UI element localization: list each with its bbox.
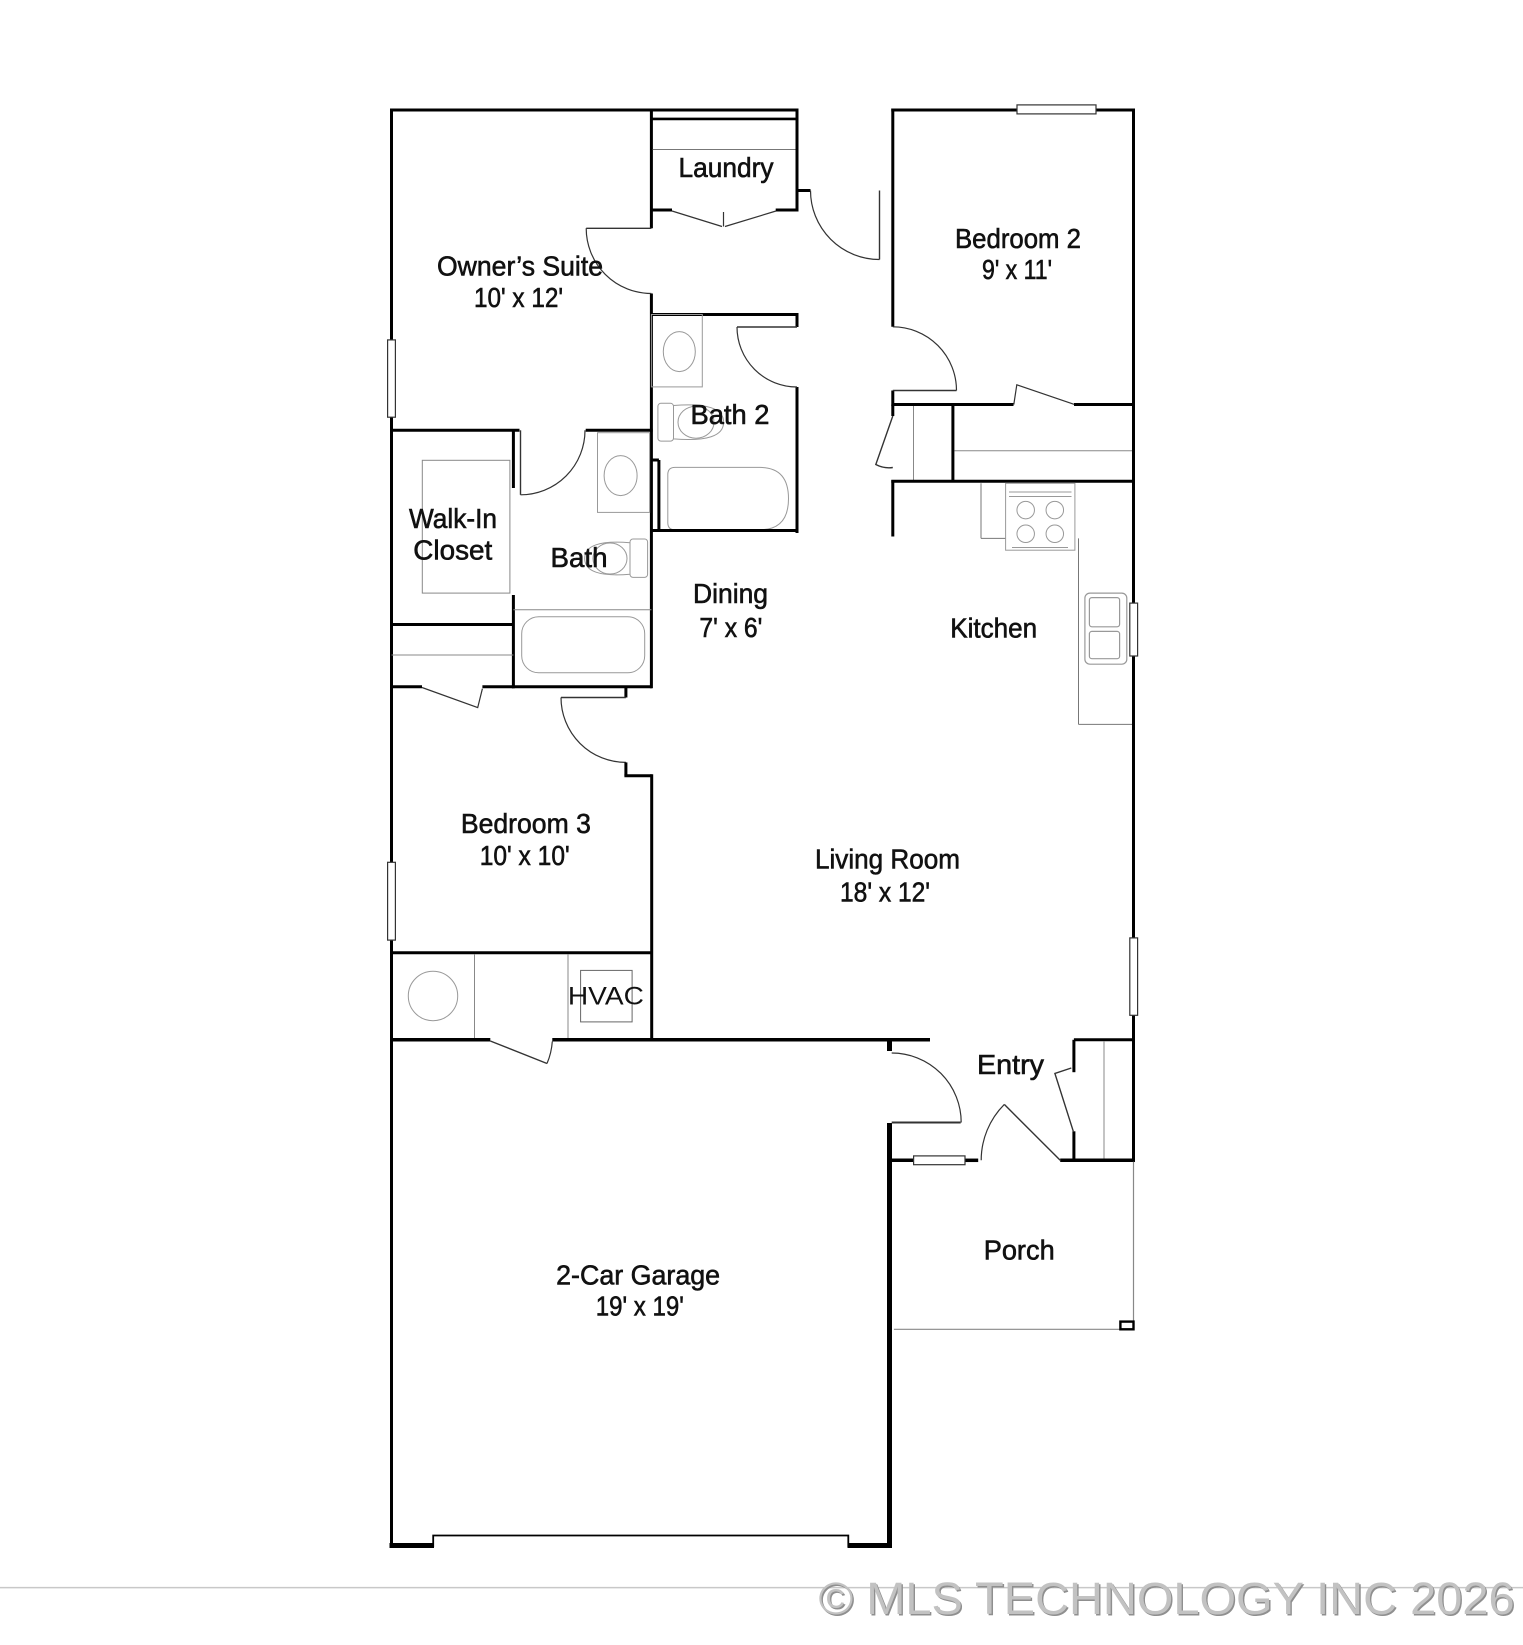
svg-text:Laundry: Laundry xyxy=(679,152,774,183)
svg-text:Bedroom 3: Bedroom 3 xyxy=(461,808,591,839)
svg-text:10' x 10': 10' x 10' xyxy=(480,840,570,871)
svg-text:Dining: Dining xyxy=(693,578,768,609)
svg-text:Bath 2: Bath 2 xyxy=(691,399,770,430)
svg-text:Closet: Closet xyxy=(413,534,492,565)
svg-text:7' x 6': 7' x 6' xyxy=(699,612,762,643)
svg-text:Bedroom 2: Bedroom 2 xyxy=(955,223,1081,254)
svg-text:18' x 12': 18' x 12' xyxy=(840,877,930,908)
svg-text:© MLS TECHNOLOGY INC 2026: © MLS TECHNOLOGY INC 2026 xyxy=(819,1573,1515,1624)
svg-text:Bath: Bath xyxy=(551,542,608,573)
svg-text:Entry: Entry xyxy=(977,1049,1044,1080)
svg-text:Walk-In: Walk-In xyxy=(409,503,497,534)
svg-text:Porch: Porch xyxy=(984,1235,1055,1266)
svg-text:2-Car Garage: 2-Car Garage xyxy=(556,1260,720,1291)
svg-text:9' x 11': 9' x 11' xyxy=(982,254,1052,285)
svg-text:Kitchen: Kitchen xyxy=(950,613,1037,644)
svg-text:19' x 19': 19' x 19' xyxy=(596,1290,684,1321)
svg-text:10' x 12': 10' x 12' xyxy=(474,282,563,313)
svg-text:Living Room: Living Room xyxy=(815,844,960,875)
svg-text:Owner’s Suite: Owner’s Suite xyxy=(437,251,603,282)
svg-text:HVAC: HVAC xyxy=(568,983,644,1011)
